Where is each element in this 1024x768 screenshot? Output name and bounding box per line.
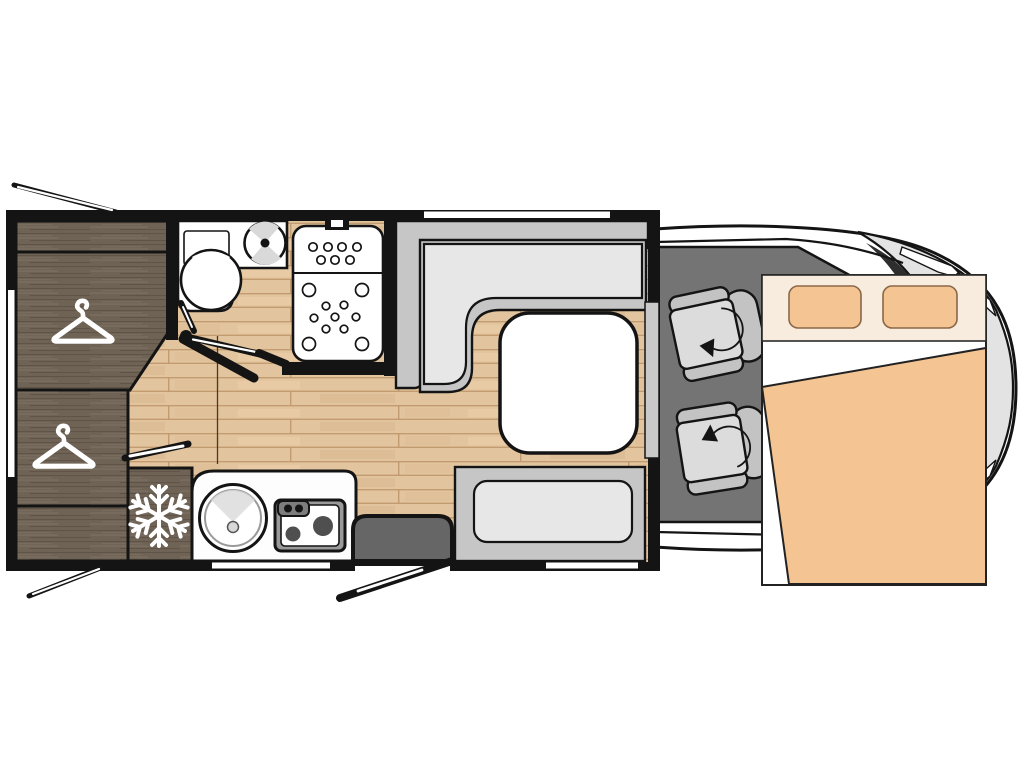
drop-down-double-bed bbox=[762, 275, 986, 585]
bed-pillow-left bbox=[789, 286, 861, 328]
bed-duvet bbox=[762, 348, 986, 584]
window-flap-top-left bbox=[14, 185, 116, 212]
window-flap-bottom-left bbox=[29, 567, 103, 596]
lower-cabinet bbox=[16, 506, 128, 561]
window-bench bbox=[546, 563, 638, 569]
window-dinette bbox=[424, 212, 610, 219]
hob-burner-small bbox=[286, 527, 301, 542]
kitchen bbox=[192, 471, 356, 561]
washbasin-drain bbox=[261, 239, 270, 248]
two-burner-hob bbox=[275, 500, 345, 551]
shower-vent-notch-inner bbox=[331, 220, 343, 227]
bed-pillow-right bbox=[883, 286, 957, 328]
wardrobe-bathroom-wall bbox=[166, 221, 178, 340]
side-bench-seat bbox=[455, 467, 645, 561]
motorhome-floor-plan bbox=[0, 0, 1024, 768]
window-left-wall bbox=[8, 290, 15, 477]
window-kitchen bbox=[212, 563, 330, 569]
shower-bottom-wall bbox=[282, 362, 396, 375]
shower-tray bbox=[293, 226, 383, 361]
overhead-cabinet bbox=[16, 221, 170, 252]
hob-knob bbox=[295, 505, 303, 513]
cab-passage-trim bbox=[645, 302, 659, 458]
entry-step bbox=[353, 516, 452, 561]
dinette-table bbox=[500, 313, 637, 453]
bathroom-dinette-wall bbox=[384, 221, 396, 376]
hob-knob-panel bbox=[278, 501, 309, 516]
habitation-area bbox=[6, 210, 660, 571]
kitchen-sink-drain bbox=[228, 522, 239, 533]
floor-plan-canvas bbox=[0, 0, 1024, 768]
hob-burner-large bbox=[313, 516, 333, 536]
hob-knob bbox=[284, 505, 292, 513]
